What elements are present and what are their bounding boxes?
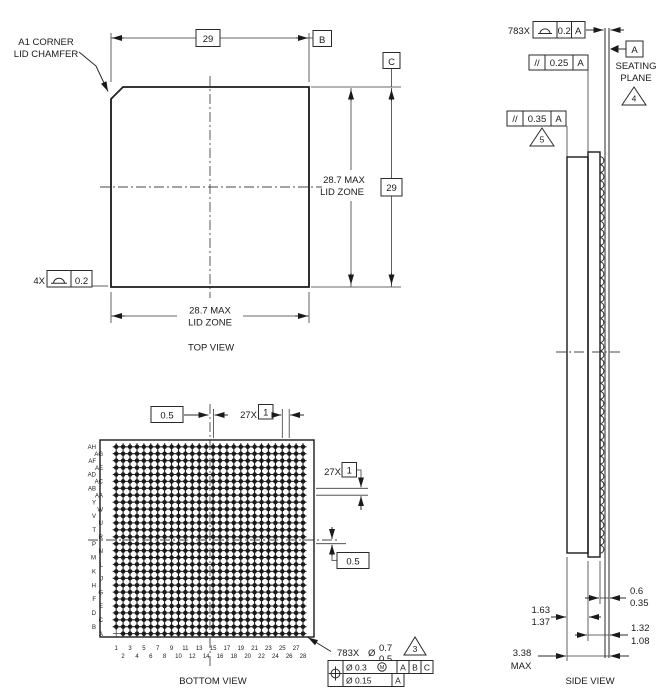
col-label: 16 (217, 654, 224, 660)
row-label: J (100, 577, 103, 583)
body-thickness-min: 1.08 (631, 636, 650, 647)
coplanarity-tolerance: 0.2 (558, 26, 571, 37)
col-label: 27 (293, 646, 300, 652)
col-label: 7 (156, 646, 160, 652)
fcf-r1-dia: Ø 0.3 (346, 662, 367, 672)
bottom-view-label: BOTTOM VIEW (179, 676, 246, 687)
row-label: M (91, 556, 96, 562)
lid-thickness-max: 1.63 (532, 605, 551, 616)
row-label: H (92, 583, 96, 589)
seating-plane-line1: SEATING (616, 61, 657, 72)
pitch-count-right: 27X (324, 467, 342, 478)
body-thickness-max: 1.32 (631, 623, 650, 634)
offset-right-elbow (332, 556, 337, 561)
col-label: 13 (196, 646, 203, 652)
row-label: Y (92, 500, 96, 506)
row-label: AD (88, 473, 97, 479)
col-label: 8 (163, 654, 167, 660)
col-labels: 1234567891011121314151617181920212223242… (115, 646, 307, 660)
width-basic-value: 29 (203, 34, 214, 45)
total-height-qualifier: MAX (511, 661, 532, 672)
row-label: W (97, 507, 103, 513)
parallelism-1-datum: A (577, 58, 584, 69)
offset-top-value: 0.5 (160, 411, 173, 422)
flag-3-number: 3 (413, 644, 418, 654)
col-label: 24 (272, 654, 279, 660)
a1-note-line2: LID CHAMFER (14, 49, 79, 60)
coplanarity-datum: A (575, 26, 582, 37)
col-label: 19 (237, 646, 244, 652)
side-dim-extension-lines (567, 557, 600, 661)
col-label: 6 (149, 654, 153, 660)
col-label: 17 (224, 646, 231, 652)
row-label: U (99, 521, 103, 527)
lid-zone-right-line1: 28.7 MAX (323, 175, 365, 186)
coplanarity-count: 783X (508, 26, 531, 37)
seating-plane-lines (605, 28, 609, 658)
parallelism-2-tolerance: 0.35 (528, 114, 547, 125)
parallelism-2-datum: A (555, 114, 562, 125)
lid-thickness-min: 1.37 (532, 617, 551, 628)
ball-callout-leader (308, 638, 331, 652)
row-label: AA (95, 493, 103, 499)
fcf-r1-datum-b: B (412, 662, 418, 672)
parallelism-1-symbol: // (534, 58, 540, 69)
row-label: AG (94, 452, 103, 458)
total-height-value: 3.38 (513, 648, 532, 659)
a1-leader-1 (79, 52, 96, 66)
a1-leader-arrow (96, 66, 108, 92)
seating-plane-line2: PLANE (620, 73, 651, 84)
substrate-side-profile (588, 152, 600, 557)
col-label: 2 (121, 654, 125, 660)
col-label: 26 (286, 654, 293, 660)
col-label: 10 (175, 654, 182, 660)
missing-ball-a1 (113, 630, 119, 636)
fcf-r1-datum-a: A (400, 662, 406, 672)
datum-c-label: C (388, 57, 395, 68)
col-label: 20 (244, 654, 251, 660)
col-label: 28 (300, 654, 307, 660)
row-label: AF (88, 459, 96, 465)
col-label: 23 (265, 646, 272, 652)
row-label: R (99, 535, 104, 541)
row-label: B (92, 625, 96, 631)
pitch-top-value: 1 (263, 408, 268, 419)
lid-zone-bottom-line2: LID ZONE (188, 318, 232, 329)
row-label: K (92, 570, 96, 576)
parallelism-1-tolerance: 0.25 (550, 58, 569, 69)
top-view: A1 CORNER LID CHAMFER 29 B C 29 28.7 MAX… (14, 30, 402, 354)
col-label: 14 (203, 654, 210, 660)
bottom-view: AHAGAFAEADACABAAYWVUTRPNMLKJHGFEDCBA 123… (88, 404, 433, 687)
fcf-r1-modifier: M (380, 665, 385, 671)
col-label: 25 (279, 646, 286, 652)
pitch-count-top: 27X (240, 410, 258, 421)
pitch-right-value: 1 (347, 466, 352, 477)
col-label: 11 (182, 646, 189, 652)
col-label: 22 (258, 654, 265, 660)
lid-zone-bottom-line1: 28.7 MAX (189, 306, 231, 317)
col-label: 15 (210, 646, 217, 652)
top-view-label: TOP VIEW (188, 343, 234, 354)
col-label: 18 (230, 654, 237, 660)
datum-a-arrow (610, 45, 619, 53)
row-label: G (98, 590, 103, 596)
parallelism-2-symbol: // (512, 114, 518, 125)
side-view: 783X 0.2 A A SEATING PLANE 4 // 0.25 A /… (507, 22, 657, 688)
col-label: 5 (142, 646, 146, 652)
pitch-top-extension-lines (282, 409, 289, 438)
drawing-svg: A1 CORNER LID CHAMFER 29 B C 29 28.7 MAX… (0, 0, 659, 692)
row-label: AH (88, 445, 96, 451)
row-label: P (92, 542, 96, 548)
flag-5-number: 5 (540, 135, 545, 145)
datum-b-label: B (319, 35, 325, 46)
row-label: E (99, 604, 103, 610)
row-labels: AHAGAFAEADACABAAYWVUTRPNMLKJHGFEDCBA (88, 445, 104, 638)
col-label: 12 (189, 654, 196, 660)
row-label: L (100, 563, 104, 569)
row-label: V (92, 514, 96, 520)
fcf-r2-datum-a: A (395, 675, 401, 685)
offset-right-value: 0.5 (346, 557, 359, 568)
a1-note-line1: A1 CORNER (18, 37, 74, 48)
row-label: AC (95, 480, 104, 486)
row-label: C (99, 618, 104, 624)
corner-tolerance: 0.2 (75, 276, 88, 287)
col-label: 1 (115, 646, 119, 652)
flag-4-number: 4 (632, 94, 637, 104)
ball-height-min: 0.35 (630, 598, 649, 609)
row-label: A (99, 632, 103, 638)
row-label: F (92, 597, 96, 603)
row-label: T (92, 528, 96, 534)
col-label: 4 (135, 654, 139, 660)
fcf-r1-datum-c: C (424, 662, 430, 672)
corner-count: 4X (33, 276, 45, 287)
col-label: 21 (251, 646, 258, 652)
lid-zone-right-line2: LID ZONE (320, 187, 364, 198)
datum-a-label: A (631, 45, 638, 56)
ball-dia-max: 0.7 (379, 643, 392, 654)
package-drawing: A1 CORNER LID CHAMFER 29 B C 29 28.7 MAX… (0, 0, 659, 692)
a1-chamfer-edge (113, 89, 122, 98)
diameter-symbol: Ø (368, 648, 376, 659)
lid-side-profile (567, 157, 588, 553)
col-label: 9 (170, 646, 174, 652)
fcf-r2-dia: Ø 0.15 (346, 675, 372, 685)
pitch-right-extension-lines (316, 488, 368, 495)
ball-count: 783X (337, 648, 360, 659)
row-label: D (92, 611, 97, 617)
height-basic-value: 29 (386, 183, 397, 194)
row-label: AB (88, 487, 96, 493)
row-label: N (99, 549, 103, 555)
pitch-right-elbow (357, 470, 362, 478)
side-view-label: SIDE VIEW (565, 676, 614, 687)
row-label: AE (95, 466, 103, 472)
ball-height-max: 0.6 (630, 586, 643, 597)
col-label: 3 (128, 646, 132, 652)
